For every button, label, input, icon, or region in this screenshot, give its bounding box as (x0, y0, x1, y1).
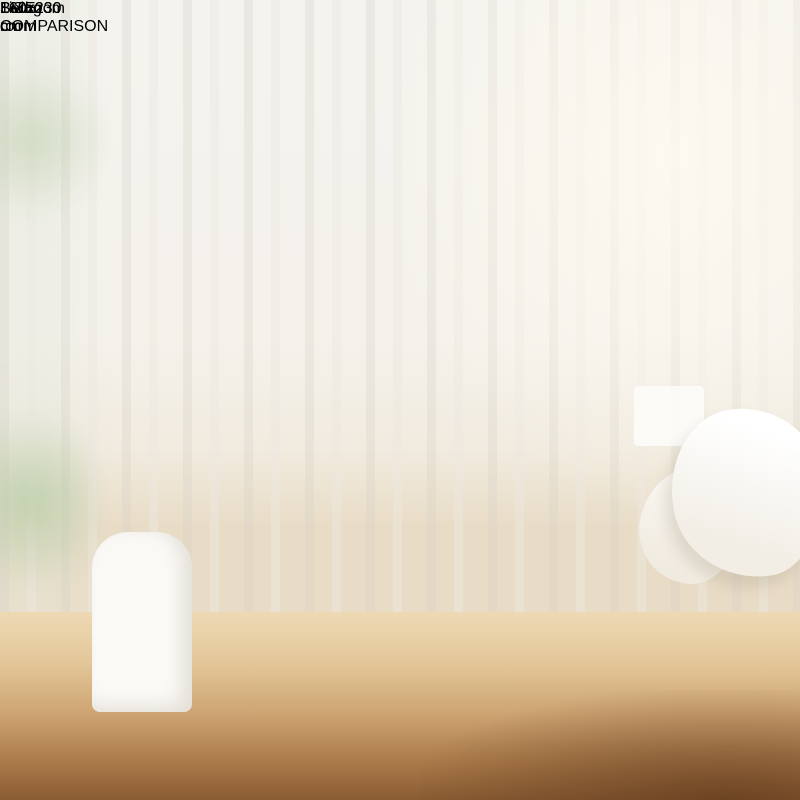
size-comparison-infographic: SIZE COMPARISON 160x230 cm 1 Bedroom (0, 0, 800, 800)
beige-bed (162, 536, 800, 786)
room-photo-background (0, 0, 800, 800)
living-room-label: Living room (0, 0, 42, 36)
